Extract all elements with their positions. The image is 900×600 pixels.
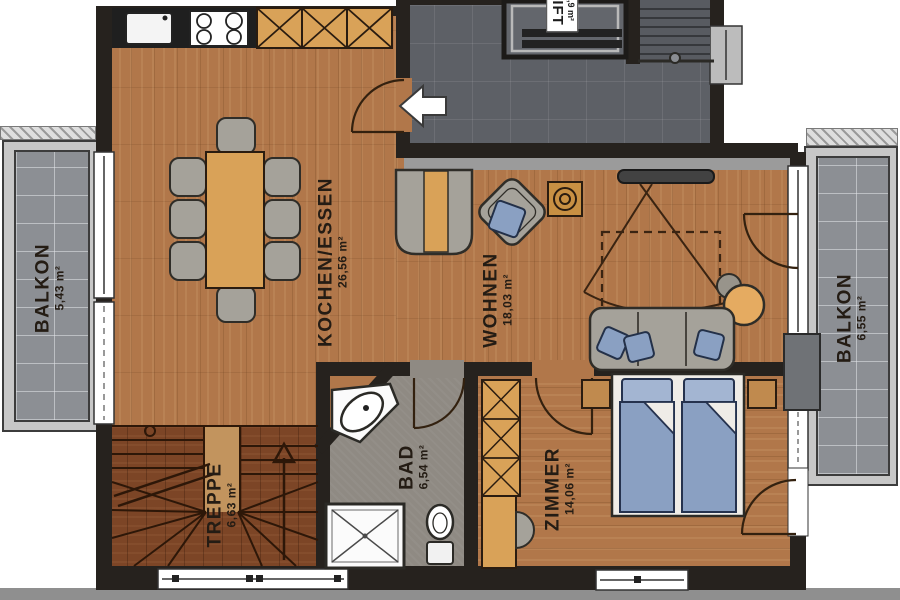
balcony-left-floor <box>14 150 90 422</box>
treppe-floor <box>108 426 322 572</box>
zimmer-floor <box>464 362 798 572</box>
balcony-left-hatch <box>0 126 96 140</box>
site-edge-bottom <box>0 588 900 600</box>
window-zimmer <box>596 570 688 590</box>
floor-plan: BALKON 5,43 m² KOCHEN/ESSEN 26,56 m² WOH… <box>0 0 900 600</box>
wohnen-floor <box>396 152 798 376</box>
balcony-right-hatch <box>806 128 898 146</box>
bad-floor <box>316 362 478 572</box>
window-treppe <box>158 569 348 589</box>
corridor-floor <box>396 0 722 158</box>
balcony-right-floor <box>816 156 890 476</box>
